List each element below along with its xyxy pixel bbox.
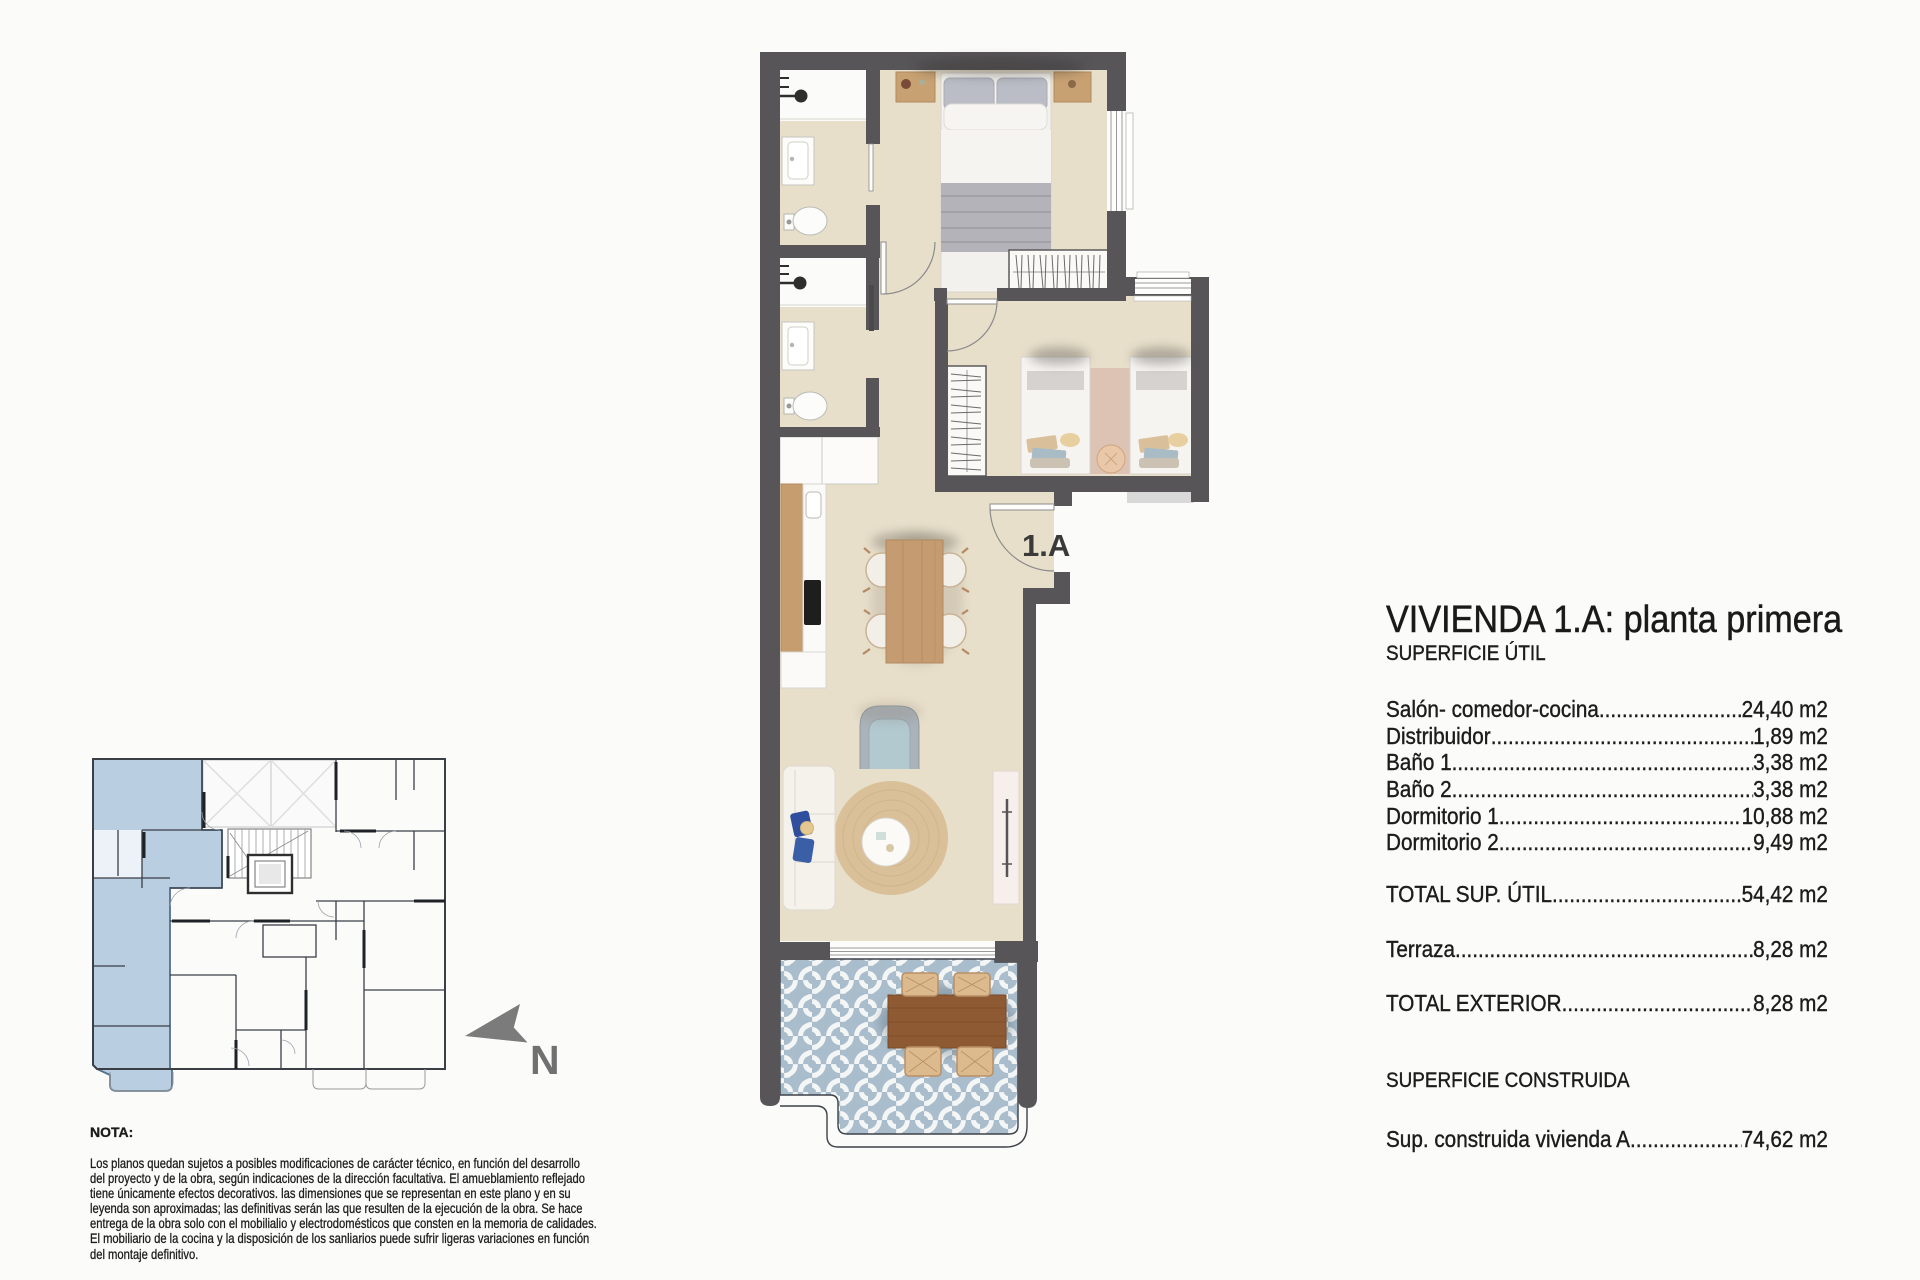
svg-text:1.A: 1.A [1022,528,1070,563]
svg-text:N: N [530,1037,560,1083]
